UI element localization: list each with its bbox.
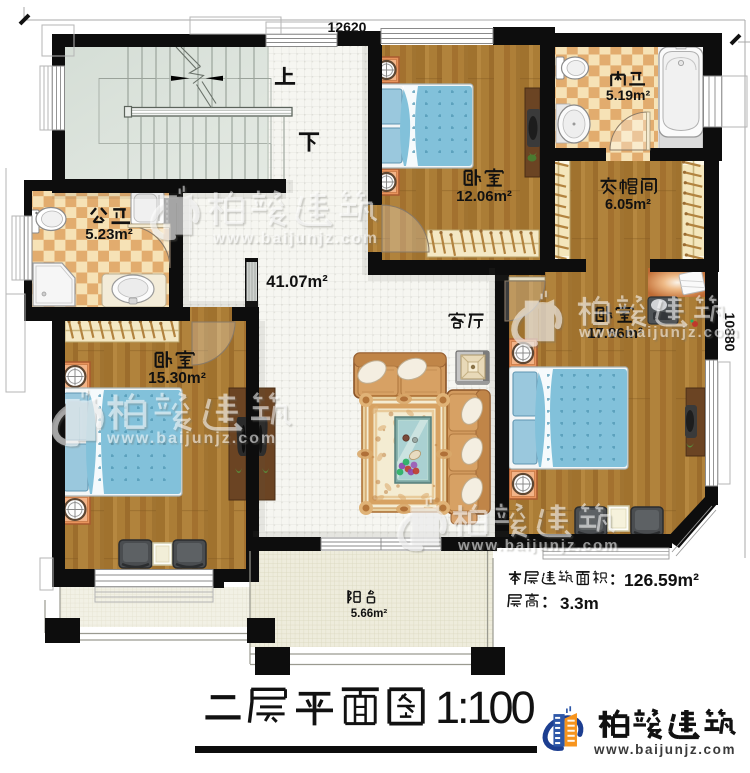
svg-text:5.66m²: 5.66m² bbox=[351, 608, 388, 620]
svg-text:www.baijunjz.com: www.baijunjz.com bbox=[212, 230, 379, 247]
svg-text:www.baijunjz.com: www.baijunjz.com bbox=[578, 324, 740, 341]
svg-text:www.baijunjz.com: www.baijunjz.com bbox=[457, 537, 619, 554]
svg-text:www.baijunjz.com: www.baijunjz.com bbox=[593, 742, 736, 757]
svg-text:5.19m²: 5.19m² bbox=[606, 87, 651, 103]
svg-text:1:100: 1:100 bbox=[435, 682, 535, 733]
svg-text:：: ： bbox=[541, 594, 557, 611]
svg-text:15.30m²: 15.30m² bbox=[148, 370, 206, 387]
svg-text:6.05m²: 6.05m² bbox=[605, 197, 651, 213]
svg-text:12.06m²: 12.06m² bbox=[456, 188, 512, 205]
svg-text:41.07m²: 41.07m² bbox=[266, 273, 328, 291]
svg-text:3.3m: 3.3m bbox=[560, 594, 599, 613]
svg-text:www.baijunjz.com: www.baijunjz.com bbox=[106, 430, 277, 447]
svg-text:12620: 12620 bbox=[328, 19, 367, 35]
svg-text:5.23m²: 5.23m² bbox=[85, 226, 133, 243]
svg-text:：: ： bbox=[609, 571, 624, 588]
svg-text:126.59m²: 126.59m² bbox=[624, 570, 699, 590]
